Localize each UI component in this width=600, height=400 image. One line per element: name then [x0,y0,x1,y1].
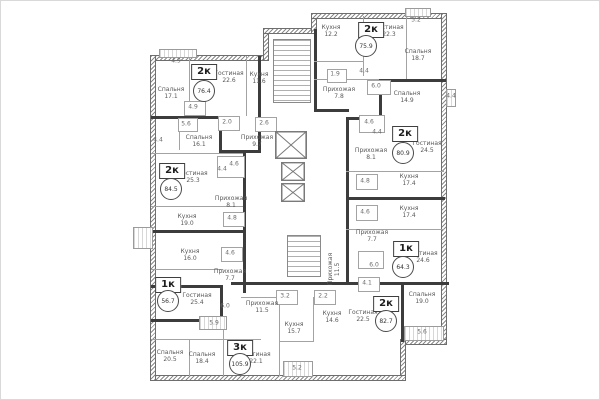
exterior-wall [151,56,155,380]
dimension-label: 4.4 [153,137,163,144]
room-area: 7.7 [214,276,246,283]
apartment-type-badge: 1к [393,241,419,257]
room-label: Спальня19.0 [409,292,436,306]
interior-wall [314,61,363,62]
exterior-wall [442,14,446,344]
interior-wall [241,297,279,298]
room-area: 15.7 [285,329,304,336]
apartment-area-circle: 105.9 [229,353,251,375]
interior-wall [279,297,280,376]
dimension-label: 4.8 [227,215,237,222]
unit-boundary-wall [314,29,317,111]
room-label: Кухня15.7 [285,322,304,336]
room-area: 17.4 [400,181,419,188]
dimension-label: 4.4 [446,93,456,100]
room-area: 17.4 [400,213,419,220]
apartment-area-circle: 56.7 [157,290,179,312]
elevator-shaft-icon [281,162,305,181]
exterior-wall [264,29,316,33]
balcony [133,227,153,249]
dimension-label: 2.6 [259,120,269,127]
room-label: Кухня11.6 [250,72,269,86]
dimension-label: 6.0 [371,83,381,90]
room-area: 20.5 [157,357,184,364]
room-label: Гостиная24.5 [412,141,441,155]
dimension-label: 1.9 [330,71,340,78]
unit-boundary-wall [314,109,349,112]
floor-plan-screenshot: Спальня17.1Гостиная22.6Кухня11.6Прихожая… [0,0,600,400]
room-label: Гостиная22.5 [348,310,377,324]
room-area: 17.1 [158,94,185,101]
apartment-area-circle: 84.5 [160,178,182,200]
dimension-label: 2.2 [318,293,328,300]
interior-wall [279,341,313,342]
dimension-label: 4.6 [364,119,374,126]
interior-wall [151,153,243,154]
dimension-label: 4.4 [359,68,369,75]
floor-plan: Спальня17.1Гостиная22.6Кухня11.6Прихожая… [1,1,599,399]
dimension-label: 4.4 [372,129,382,136]
room-area: 8.1 [355,155,387,162]
room-label: Прихожая11.5 [246,301,278,315]
room-label: Кухня17.4 [400,206,419,220]
room-label: Кухня12.2 [322,25,341,39]
room-label: Кухня17.4 [400,174,419,188]
dimension-label: 5.2 [292,365,302,372]
apartment-type-badge: 2к [392,126,418,142]
exterior-wall [264,29,268,60]
room-label: Прихожая9.7 [241,135,273,149]
dimension-label: 5.2 [411,17,421,24]
room-label: Гостиная22.6 [214,71,243,85]
dimension-label: 4.4 [217,166,227,173]
dimension-label: 4.8 [360,178,370,185]
room-label: Спальня16.1 [186,135,213,149]
room-label: Спальня17.1 [158,87,185,101]
elevator-shaft-icon [281,183,305,202]
room-area: 7.8 [323,94,355,101]
room-area: 14.6 [323,318,342,325]
dimension-label: 2.0 [222,119,232,126]
room-area: 24.5 [412,148,441,155]
room-area: 16.1 [186,142,213,149]
elevator-shaft-icon [275,131,307,159]
staircase-icon [287,235,321,277]
unit-boundary-wall [346,197,445,200]
room-area: 25.4 [182,300,211,307]
room-area: 11.5 [335,253,342,285]
room-label: Спальня18.7 [405,49,432,63]
room-label: Прихожая8.1 [355,148,387,162]
room-label: Гостиная25.4 [182,293,211,307]
dimension-label: 4.9 [171,58,181,65]
room-label: Спальня20.5 [157,350,184,364]
apartment-type-badge: 2к [191,64,217,80]
apartment-area-circle: 64.3 [392,256,414,278]
dimension-label: 4.9 [188,104,198,111]
apartment-area-circle: 80.9 [392,142,414,164]
apartment-type-badge: 2к [159,163,185,179]
room-area: 16.0 [181,256,200,263]
dimension-label: 5.6 [417,329,427,336]
dimension-label: 4.6 [360,209,370,216]
apartment-area-circle: 75.9 [355,35,377,57]
room-area: 11.5 [246,308,278,315]
room-label: Прихожая7.7 [214,269,246,283]
apartment-area-circle: 76.4 [193,80,215,102]
room-label: Спальня14.9 [394,91,421,105]
room-area: 11.6 [250,79,269,86]
dimension-label: 5.9 [209,320,219,327]
room-label: Прихожая11.5 [328,253,342,285]
exterior-wall [151,376,405,380]
room-area: 22.5 [348,317,377,324]
room-area: 18.7 [405,56,432,63]
room-label: Кухня19.0 [178,214,197,228]
dimension-label: 3.2 [280,293,290,300]
room-area: 22.6 [214,78,243,85]
room-label: Кухня16.0 [181,249,200,263]
room-area: 25.3 [178,178,207,185]
dimension-label: 4.6 [225,250,235,257]
room-area: 7.7 [356,237,388,244]
room-label: Прихожая7.8 [323,87,355,101]
dimension-label: 6.0 [369,262,379,269]
room-area: 14.9 [394,98,421,105]
room-area: 18.4 [189,359,216,366]
dimension-label: 4.1 [362,280,372,287]
interior-wall [246,56,247,116]
room-area: 19.0 [178,221,197,228]
unit-boundary-wall [151,230,246,233]
dimension-label: 4.6 [229,161,239,168]
dimension-label: 6.0 [220,303,230,310]
apartment-area-circle: 82.7 [375,310,397,332]
room-area: 8.1 [215,203,247,210]
room-label: Кухня14.6 [323,311,342,325]
exterior-wall [401,340,405,380]
room-area: 12.2 [322,32,341,39]
interior-wall [346,171,444,172]
room-label: Прихожая7.7 [356,230,388,244]
room-label: Спальня18.4 [189,352,216,366]
dimension-label: 5.6 [181,121,191,128]
room-area: 19.0 [409,299,436,306]
interior-wall [151,269,223,270]
room-area: 9.7 [241,142,273,149]
room-label: Прихожая8.1 [215,196,247,210]
staircase-icon [273,39,311,103]
